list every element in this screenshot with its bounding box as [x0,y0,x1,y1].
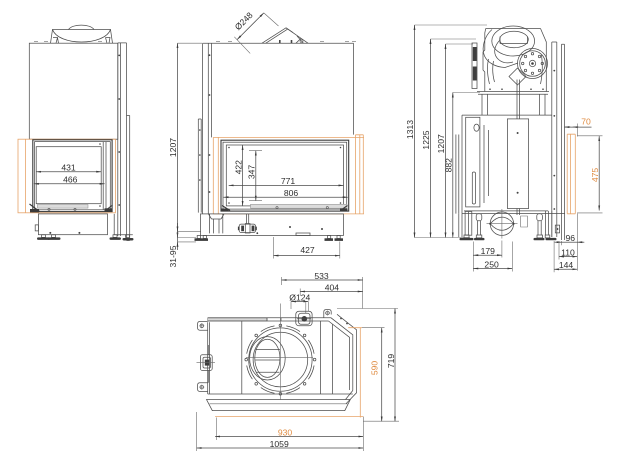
svg-text:466: 466 [63,175,78,185]
svg-text:179: 179 [481,246,496,256]
svg-text:70: 70 [581,116,591,126]
svg-text:1313: 1313 [405,120,415,139]
svg-text:Ø248: Ø248 [233,10,255,32]
svg-text:110: 110 [561,247,575,257]
svg-text:590: 590 [370,361,380,376]
svg-text:144: 144 [559,260,574,270]
svg-text:Ø124: Ø124 [289,293,310,303]
svg-text:250: 250 [484,259,499,269]
svg-text:422: 422 [233,160,243,175]
svg-text:882: 882 [444,158,454,173]
svg-text:533: 533 [314,271,329,281]
svg-text:1207: 1207 [168,138,178,157]
svg-text:719: 719 [386,354,396,369]
svg-text:404: 404 [325,282,340,292]
svg-text:427: 427 [300,245,315,255]
svg-text:1225: 1225 [421,130,431,149]
svg-text:347: 347 [247,165,257,180]
svg-text:771: 771 [281,176,296,186]
svg-text:475: 475 [590,168,600,183]
svg-text:31-95: 31-95 [168,245,178,267]
svg-text:1207: 1207 [436,134,446,153]
svg-text:930: 930 [278,427,293,437]
svg-text:1059: 1059 [270,439,289,449]
svg-text:806: 806 [284,188,299,198]
svg-text:431: 431 [61,162,76,172]
svg-text:96: 96 [566,233,576,243]
